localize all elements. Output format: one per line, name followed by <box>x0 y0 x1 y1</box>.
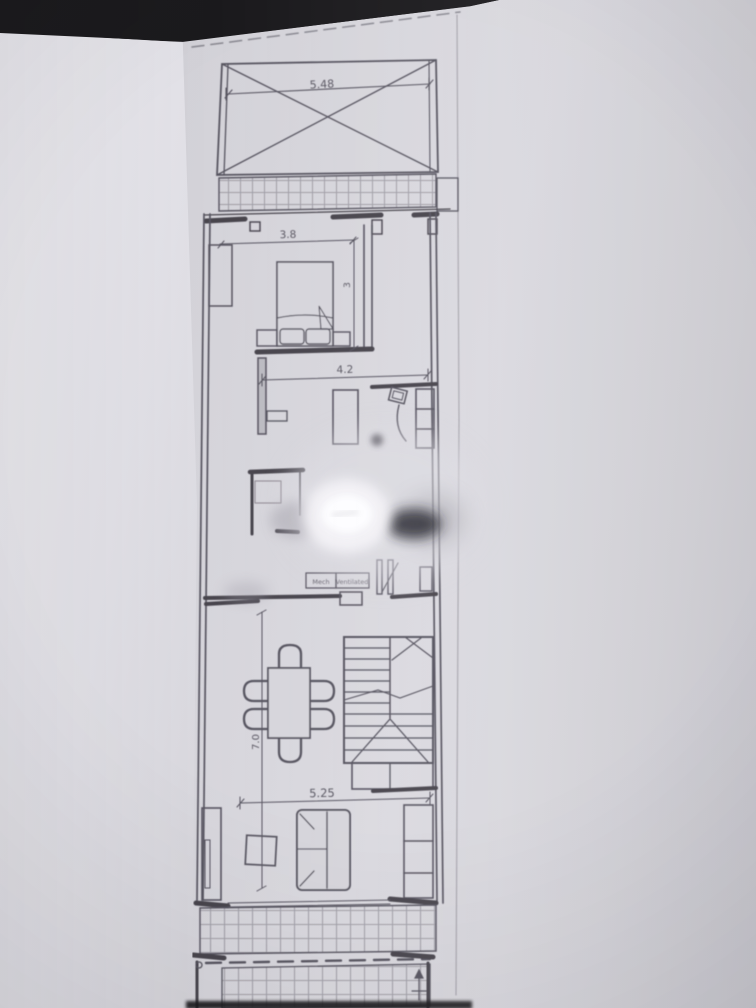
side-table <box>245 835 276 866</box>
dim-text-living-width: 5.25 <box>309 786 335 800</box>
kitchen-north-wall <box>372 384 436 387</box>
table-background-bottom <box>186 1001 472 1008</box>
dim-text-front-width: 5.48 <box>309 77 334 91</box>
wall-stub <box>258 358 266 434</box>
understair-cupboard <box>352 763 433 789</box>
stair-break-line <box>344 686 433 700</box>
dining-table <box>268 668 310 738</box>
staircase <box>344 637 436 791</box>
facade-wall <box>205 209 450 234</box>
nightstand <box>333 332 350 346</box>
dark-dot <box>371 434 383 446</box>
stair-treads <box>344 714 433 750</box>
stair-treads <box>344 648 390 703</box>
threshold-step <box>340 592 362 605</box>
rear-wall-left <box>196 903 228 906</box>
photo-artifacts <box>224 427 485 602</box>
sofa <box>297 810 350 890</box>
yard-boundary-dashed-line <box>206 959 430 963</box>
dim-text-interior-length: 7.0 <box>251 734 262 750</box>
low-cabinet <box>267 411 287 421</box>
rear-terrace <box>200 905 436 954</box>
bed <box>277 262 333 346</box>
pier <box>250 222 260 231</box>
gray-smudge <box>224 582 268 602</box>
dim-text-bedroom-depth: 3 <box>343 282 353 288</box>
dark-smudge <box>385 509 441 539</box>
dim-text-kitchen-width: 4.2 <box>336 364 353 377</box>
pier <box>372 220 382 234</box>
dim-text-bedroom-width: 3.8 <box>279 229 296 242</box>
vanity <box>255 481 281 503</box>
sink <box>389 387 408 403</box>
front-terrace <box>219 174 436 211</box>
wardrobe <box>209 245 232 306</box>
blank-sheet-overlay <box>0 0 202 1008</box>
nightstand <box>257 330 277 346</box>
tv-unit <box>202 808 221 900</box>
bedroom-south-wall <box>257 349 372 352</box>
side-shaft <box>437 178 458 211</box>
stair-landing-lines <box>392 637 433 660</box>
vent-note-word-1: Mech <box>312 578 329 586</box>
bedroom-right-wall <box>364 225 372 350</box>
living-room <box>196 805 436 907</box>
photo-of-floor-plan-sheet: 5.48 3.8 3 4.2 7.0 5.25 Mech Ventilated <box>0 0 756 1008</box>
rear-wall-right <box>390 899 436 903</box>
dining-area <box>206 601 334 762</box>
wall-shelving <box>404 805 433 898</box>
